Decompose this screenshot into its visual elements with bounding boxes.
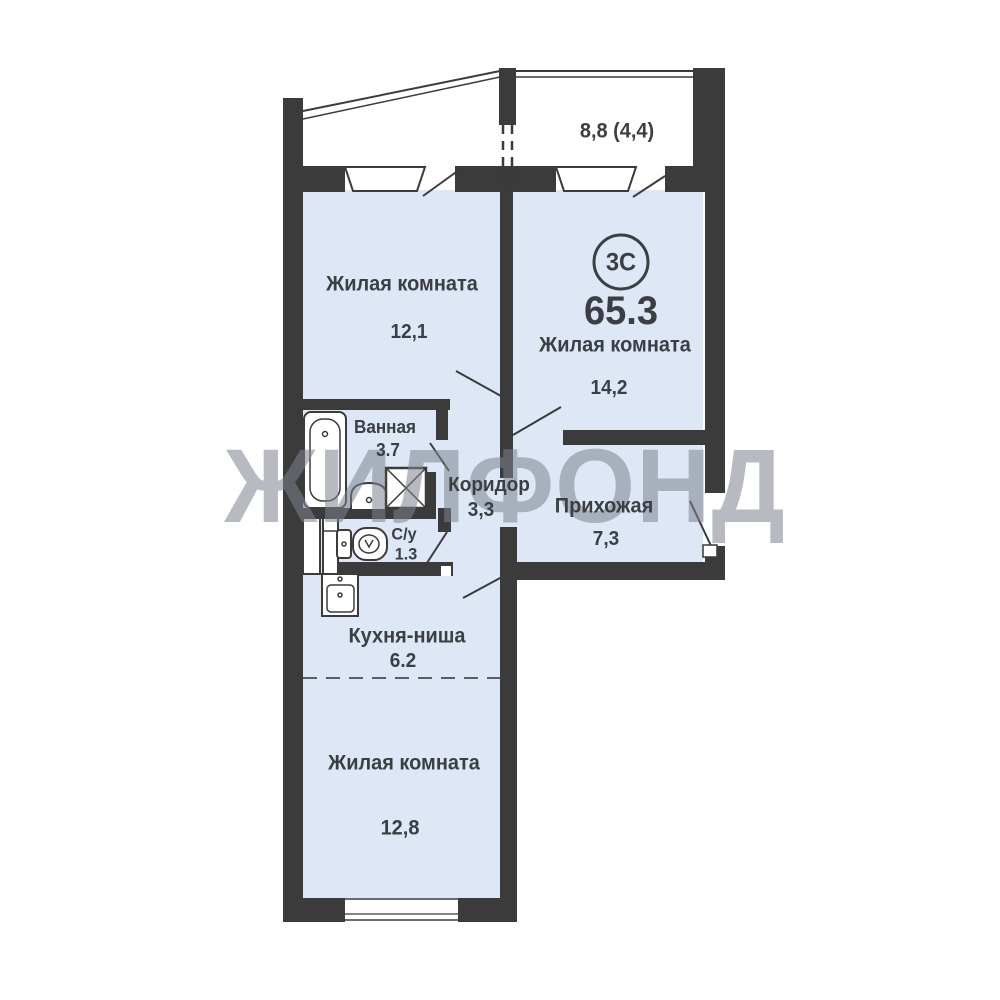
room-living-top-right-name: Жилая комната [539,335,691,356]
room-kitchen-name: Кухня-ниша [349,626,466,647]
window-bottom [345,898,458,922]
room-living-top-left-name: Жилая комната [326,274,478,295]
door-swing-kitchen [463,577,502,598]
room-hallway-area: 7,3 [593,529,619,549]
room-bathroom-area: 3.7 [376,441,400,459]
door-swing-balcony-left [423,170,459,196]
window-sill-left [345,167,425,191]
room-bathroom-name: Ванная [354,418,416,436]
door-swing-room1 [456,371,501,396]
balcony-area-label: 8,8 (4,4) [580,121,654,142]
room-living-bottom-area: 12,8 [381,818,420,839]
room-wc-area: 1.3 [395,546,417,563]
window-sill-right [556,167,636,191]
room-hallway-name: Прихожая [555,496,653,517]
plan-type-badge-text: 3С [606,251,636,276]
room-living-bottom-name: Жилая комната [328,753,480,774]
door-swing-balcony-right [633,176,665,197]
total-area-label: 65.3 [584,291,658,331]
room-wc-name: С/у [391,526,416,543]
balcony-rail-slope-line2 [303,77,500,119]
room-kitchen-area: 6.2 [390,651,416,671]
room-corridor-area: 3,3 [468,500,494,520]
room-living-top-right-area: 14,2 [591,378,628,398]
door-hinge-marker-wc [441,566,451,576]
balcony-rail-slope-line [303,71,500,111]
room-corridor-name: Коридор [448,475,530,495]
room-living-top-left-area: 12,1 [391,322,428,342]
floor-plan: ЖИЛФОНД 8,8 (4,4) Жилая комната 12,1 3С … [0,0,1000,1000]
